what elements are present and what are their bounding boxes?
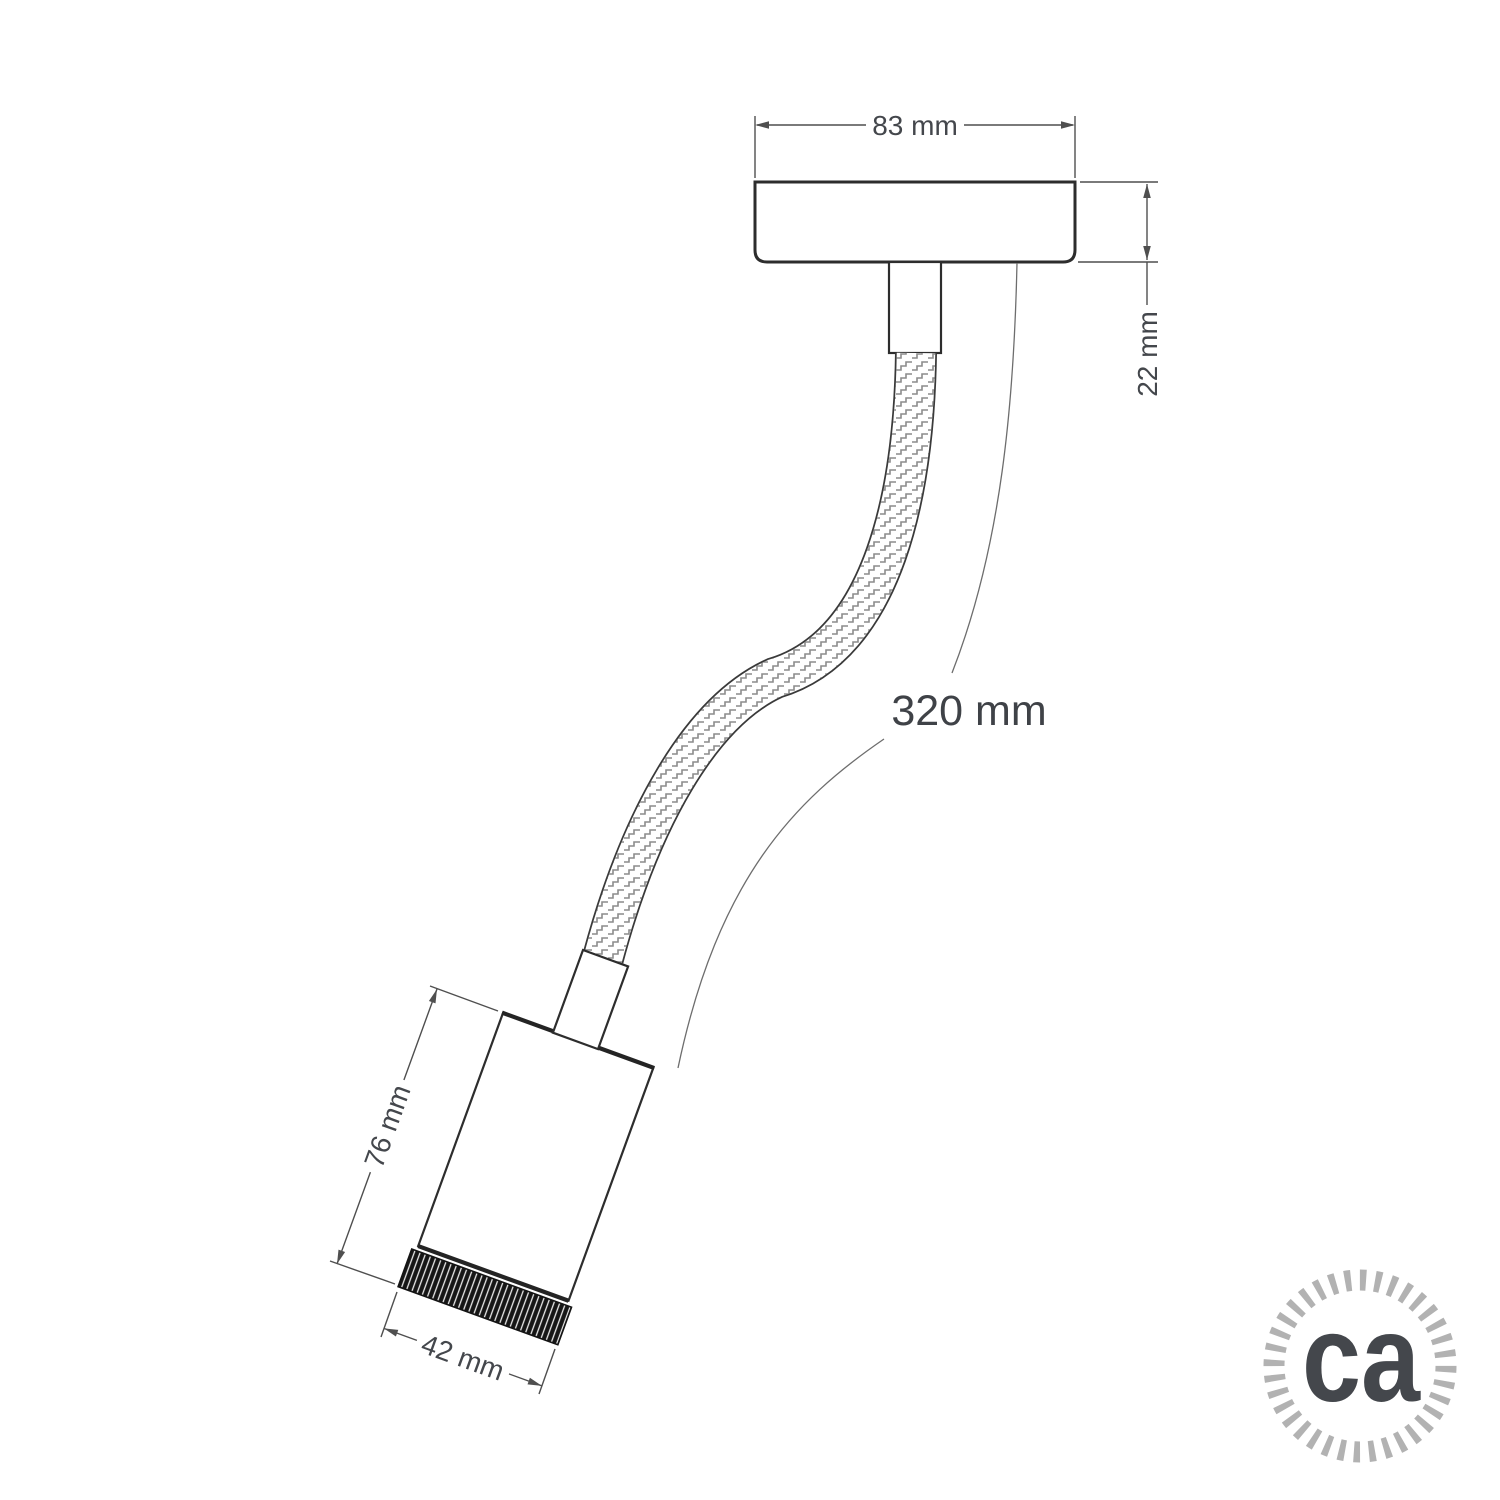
spotlight-technical-drawing: 83 mm 22 mm 320 mm — [0, 0, 1500, 1500]
arrowhead-right — [1061, 121, 1075, 129]
arrowhead-left — [755, 121, 769, 129]
ceiling-canopy — [755, 182, 1075, 353]
body-length-label: 76 mm — [358, 1081, 416, 1172]
dimension-canopy-width: 83 mm — [755, 109, 1075, 178]
brand-logo: ca — [1274, 1280, 1446, 1452]
flexible-braided-arm — [603, 353, 916, 958]
arrowhead-top — [429, 989, 437, 1003]
canopy-width-label: 83 mm — [872, 110, 958, 141]
socket-ferrule — [553, 950, 628, 1049]
body-diameter-label: 42 mm — [417, 1328, 508, 1386]
arrowhead-left — [384, 1328, 398, 1336]
arrowhead-down — [1143, 246, 1151, 260]
technical-drawing-page: 83 mm 22 mm 320 mm — [0, 0, 1500, 1500]
leader-curve-upper — [952, 263, 1017, 673]
leader-curve-lower — [678, 739, 884, 1068]
arrowhead-bottom — [337, 1250, 345, 1264]
arrowhead-up — [1143, 184, 1151, 198]
dimension-flex-length: 320 mm — [678, 263, 1047, 1068]
extension-line — [539, 1349, 555, 1394]
flex-length-label: 320 mm — [891, 687, 1046, 735]
flex-tube-braid-texture — [603, 353, 916, 958]
extension-line — [430, 986, 498, 1011]
extension-line — [330, 1261, 395, 1284]
dimension-canopy-depth: 22 mm — [1078, 182, 1163, 397]
spotlight-body — [398, 1011, 658, 1344]
canopy-outline — [755, 182, 1075, 262]
canopy-depth-label: 22 mm — [1132, 311, 1163, 397]
canopy-stem — [889, 262, 941, 353]
ferrule-outline — [553, 950, 628, 1049]
logo-monogram: ca — [1302, 1290, 1421, 1428]
arrowhead-right — [528, 1378, 542, 1386]
